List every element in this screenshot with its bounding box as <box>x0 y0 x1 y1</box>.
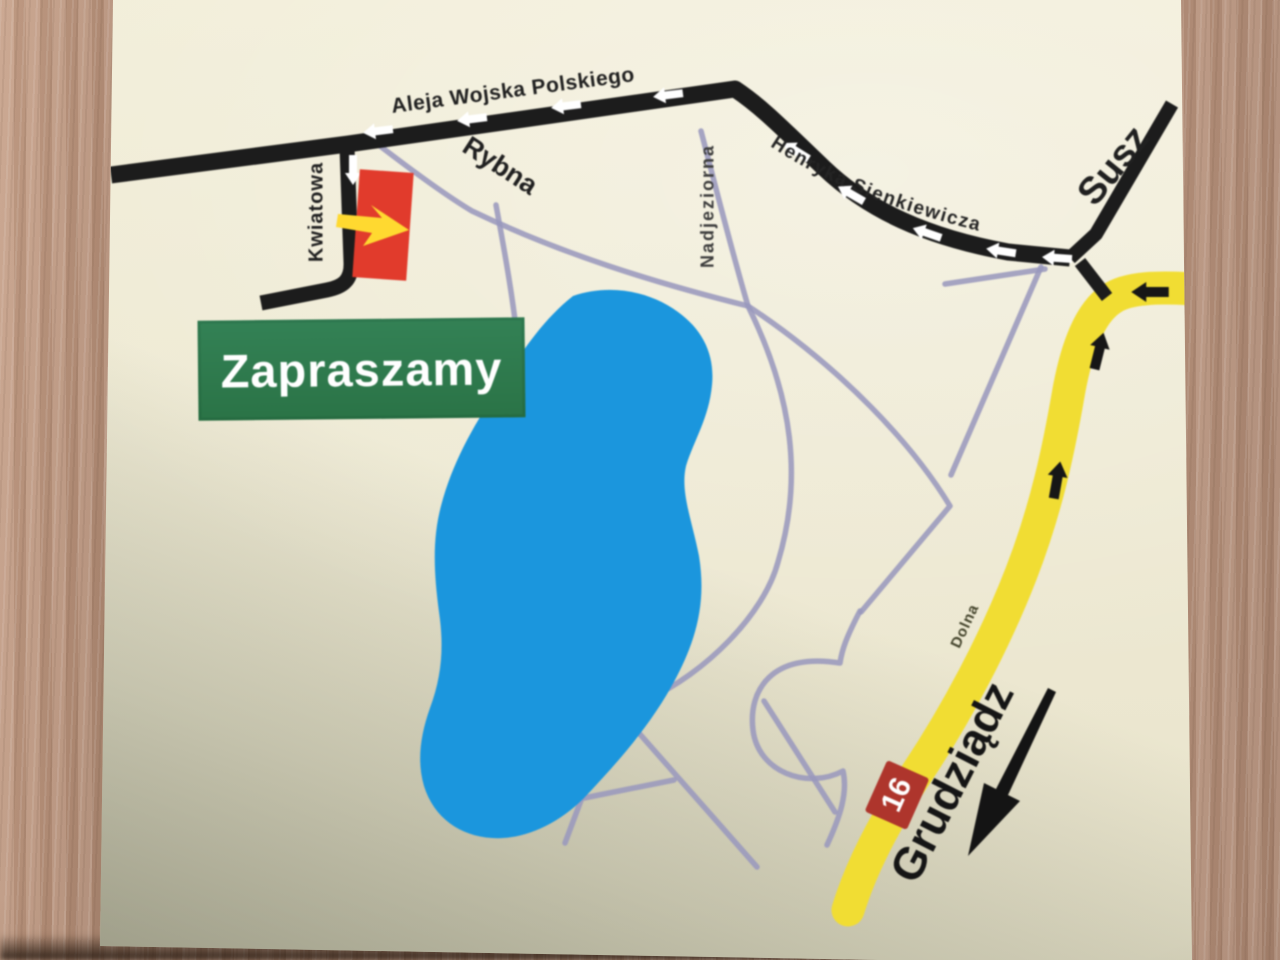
street-label-kwiatowa: Kwiatowa <box>306 162 329 262</box>
street-map-drawing: Henryka Sienkiewicza <box>0 0 1280 960</box>
junction-stub <box>1080 262 1107 297</box>
photo-of-map: Henryka Sienkiewicza Aleja Wojska Polski… <box>0 0 1280 960</box>
map-leaflet-paper: Henryka Sienkiewicza Aleja Wojska Polski… <box>0 0 1280 960</box>
road-loop <box>752 611 860 845</box>
road-minor <box>496 205 515 320</box>
street-label-henryka-sienkiewicza: Henryka Sienkiewicza <box>767 133 984 236</box>
street-label-nadjeziorna: Nadjeziorna <box>698 144 719 268</box>
road-minor <box>764 701 835 812</box>
road-minor <box>945 269 1045 284</box>
invitation-banner: Zapraszamy <box>197 317 525 420</box>
road-minor <box>951 267 1041 475</box>
major-roads <box>111 89 1172 303</box>
road-rybna <box>371 139 748 306</box>
